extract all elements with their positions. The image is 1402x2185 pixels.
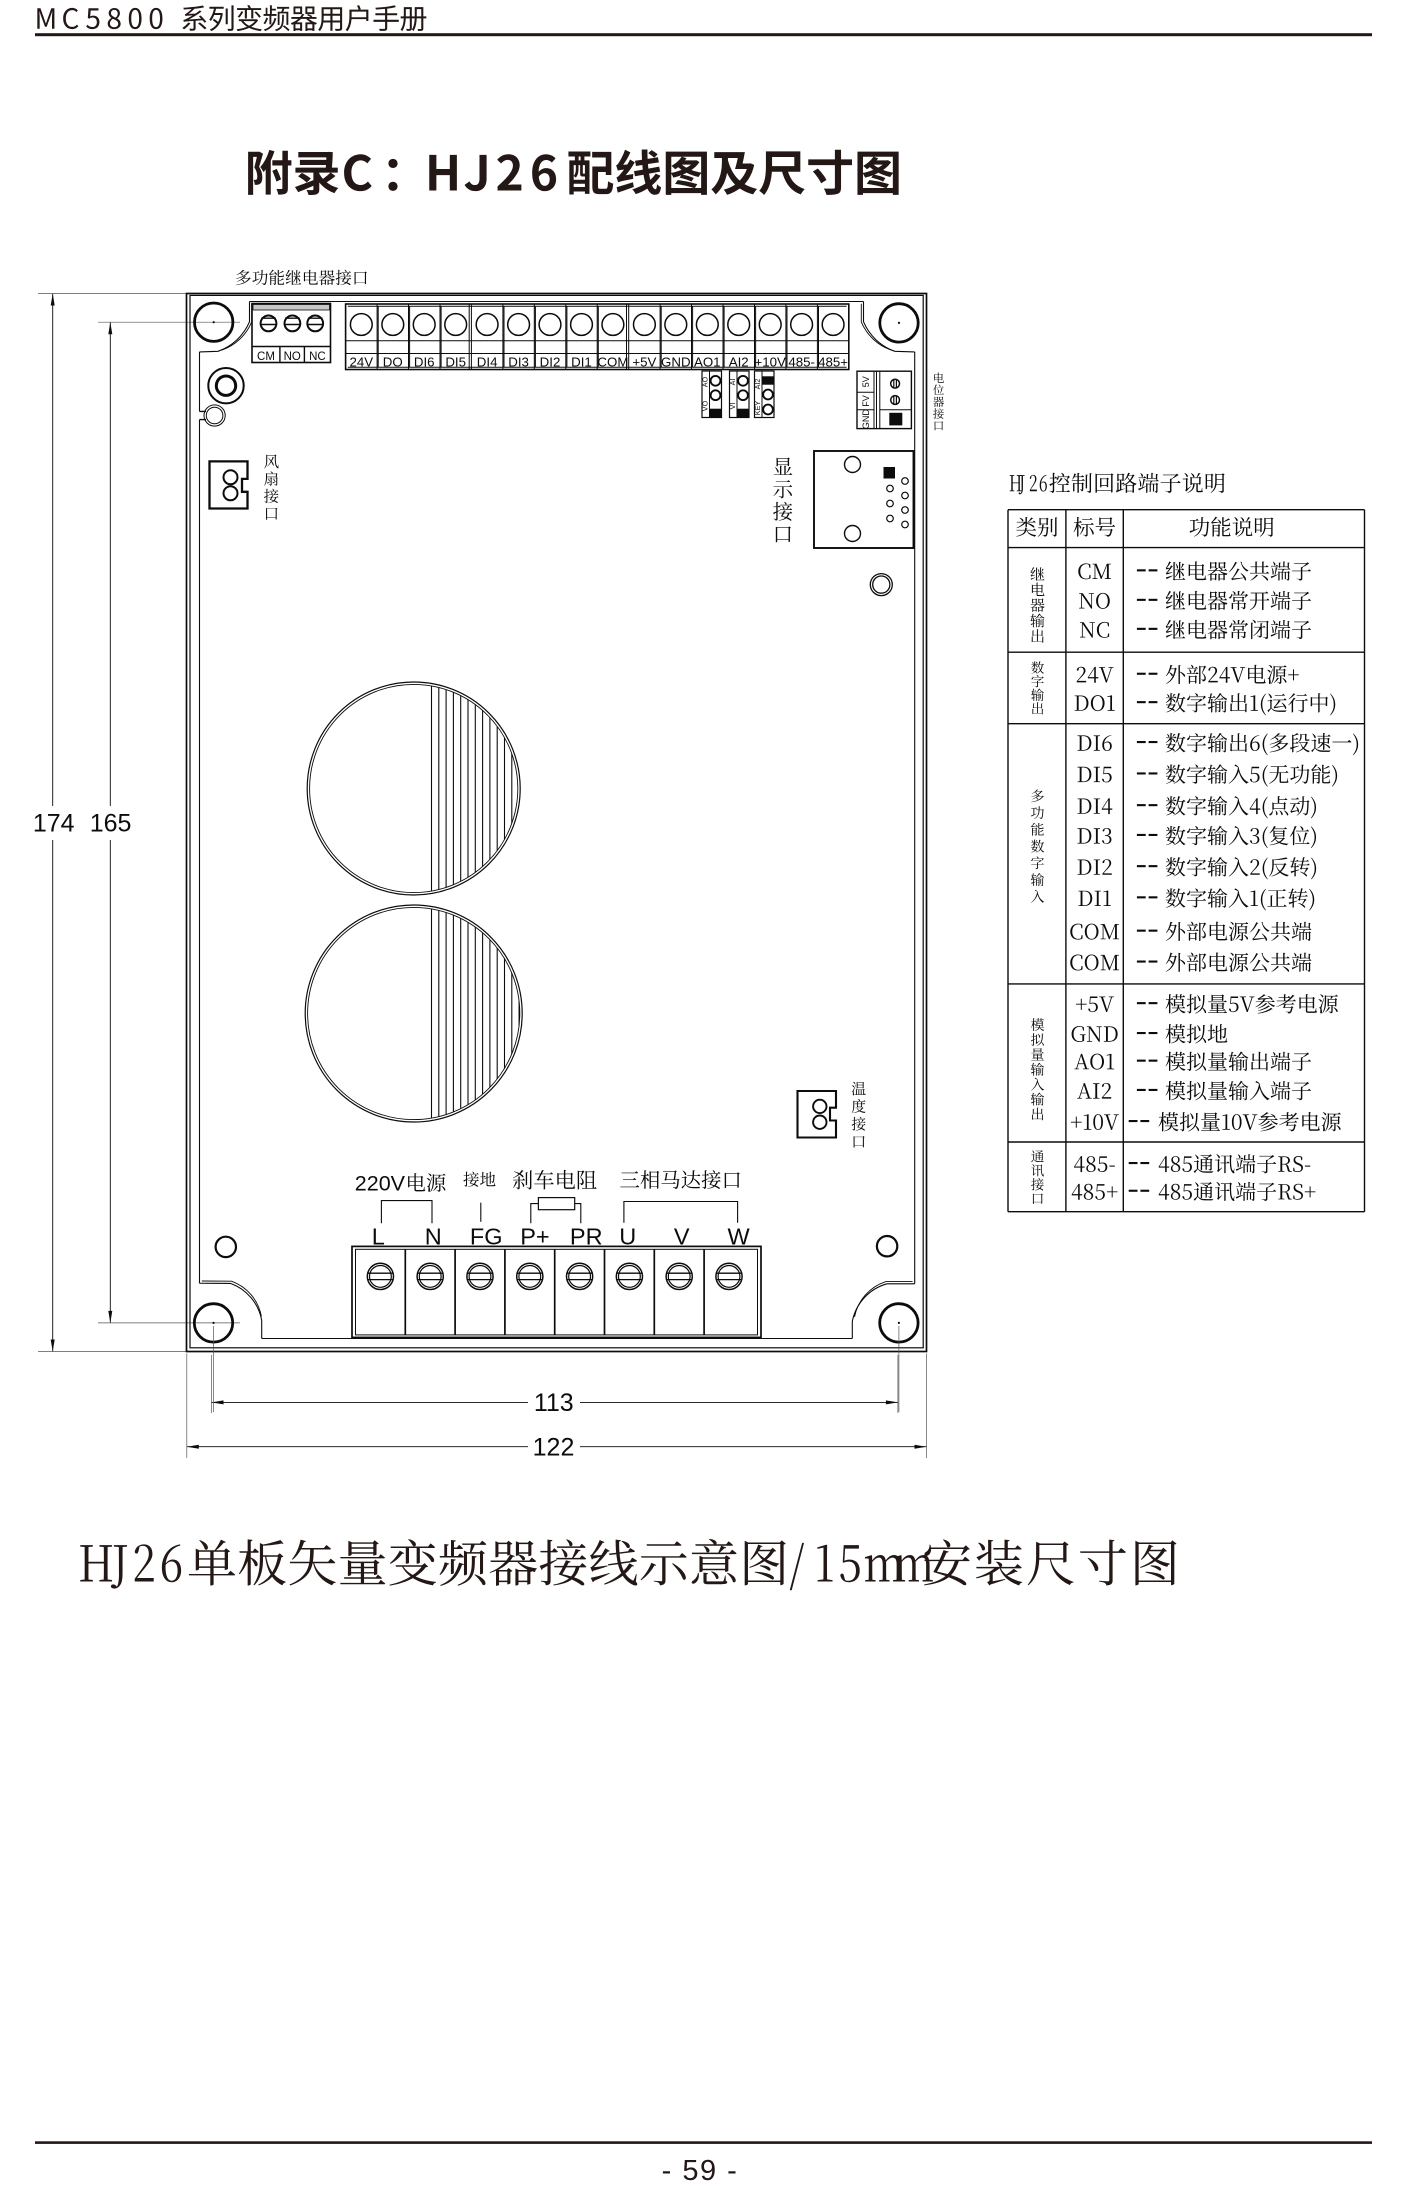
svg-text:CM: CM (257, 351, 275, 363)
svg-text:24V: 24V (349, 355, 373, 370)
svg-text:COM: COM (597, 355, 628, 370)
svg-text:N: N (425, 1223, 442, 1249)
svg-text:P+: P+ (520, 1223, 549, 1249)
svg-text:165: 165 (90, 809, 132, 837)
svg-text:AO: AO (700, 376, 709, 387)
svg-text:220V: 220V (355, 1172, 406, 1196)
svg-text:AI: AI (728, 379, 737, 386)
svg-text:AO1: AO1 (694, 355, 721, 370)
svg-text:VO: VO (700, 400, 709, 411)
svg-text:DI4: DI4 (477, 355, 498, 370)
svg-text:122: 122 (533, 1434, 575, 1462)
svg-text:NC: NC (309, 351, 326, 363)
svg-text:GND: GND (661, 355, 691, 370)
svg-text:V: V (674, 1223, 690, 1249)
svg-text:DO: DO (383, 355, 403, 370)
svg-text:- 59 -: - 59 - (662, 2155, 739, 2185)
svg-text:AI2: AI2 (753, 379, 762, 390)
svg-text:485-: 485- (788, 355, 815, 370)
svg-text:NO: NO (284, 351, 301, 363)
svg-text:485+: 485+ (818, 355, 848, 370)
svg-text:DI5: DI5 (445, 355, 466, 370)
svg-text:DI1: DI1 (571, 355, 592, 370)
svg-text:+10V: +10V (754, 355, 786, 370)
svg-text:KEY: KEY (753, 401, 762, 416)
svg-text:VI: VI (728, 403, 737, 410)
svg-text:FG: FG (470, 1223, 503, 1249)
svg-text:+5V: +5V (632, 355, 656, 370)
svg-text:174: 174 (33, 809, 75, 837)
svg-text:5V: 5V (861, 376, 871, 387)
svg-text:PR: PR (570, 1223, 603, 1249)
svg-text:DI2: DI2 (540, 355, 561, 370)
svg-text:DI6: DI6 (414, 355, 435, 370)
svg-text:U: U (619, 1223, 636, 1249)
svg-text:AI2: AI2 (729, 355, 749, 370)
svg-text:W: W (728, 1223, 751, 1249)
svg-text:113: 113 (534, 1389, 574, 1417)
svg-text:FV: FV (861, 395, 871, 407)
svg-text:DI3: DI3 (508, 355, 529, 370)
svg-text:GND: GND (861, 409, 871, 430)
svg-text:L: L (372, 1223, 385, 1249)
